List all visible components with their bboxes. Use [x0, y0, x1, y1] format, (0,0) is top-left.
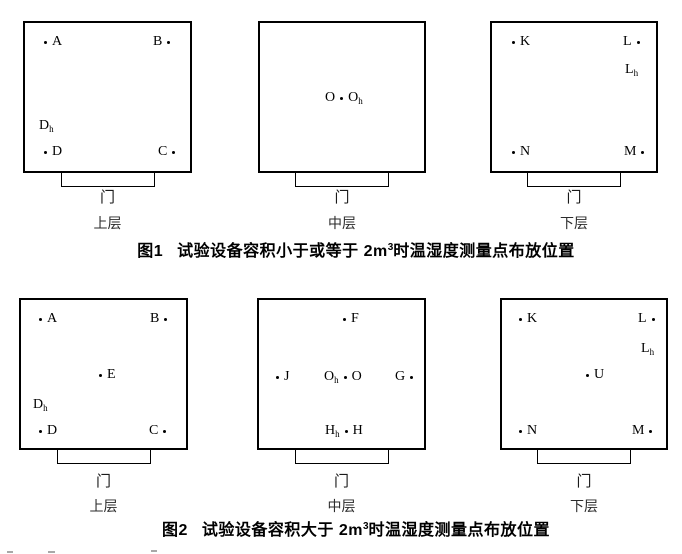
- point-marker-dot: [164, 318, 167, 321]
- points-layer: ABEDhDC: [19, 298, 188, 450]
- point-marker-dot: [519, 318, 522, 321]
- point-marker-dot: [519, 430, 522, 433]
- measure-point-Lh: Lh: [625, 63, 638, 77]
- door-shape: [295, 173, 389, 187]
- points-layer: KLLhUNM: [500, 298, 669, 450]
- layer-label: 下层: [500, 498, 668, 514]
- clipped-text-fragment: [151, 550, 157, 552]
- points-layer: FJOhOGHhH: [257, 298, 426, 450]
- chamber-box: KLLhUNM: [500, 298, 668, 450]
- measure-point-B: B: [153, 35, 170, 49]
- point-marker-dot: [652, 318, 655, 321]
- point-label: B: [153, 35, 162, 49]
- point-marker-dot: [344, 376, 347, 379]
- measure-point-F: F: [343, 312, 359, 326]
- measure-point-Oh-O: OhO: [324, 370, 362, 384]
- figure1-number: 图1: [137, 243, 163, 260]
- door-label: 门: [19, 473, 188, 491]
- chamber-box: ABDhDC: [23, 21, 192, 173]
- measure-point-J: J: [276, 370, 289, 384]
- point-label: E: [107, 368, 116, 382]
- measure-point-M: M: [632, 424, 652, 438]
- measure-point-K: K: [512, 35, 530, 49]
- point-label: M: [632, 424, 644, 438]
- measure-point-L: L: [638, 312, 655, 326]
- point-label: Lh: [641, 342, 654, 356]
- point-label: L: [638, 312, 647, 326]
- point-label: C: [149, 424, 158, 438]
- point-label: O: [352, 370, 362, 384]
- door-shape: [537, 450, 631, 464]
- point-label: N: [520, 145, 530, 159]
- point-marker-dot: [637, 41, 640, 44]
- cubic-meter-superscript: 3: [363, 521, 369, 532]
- panel-fig2-middle-layer: FJOhOGHhH 门 中层: [257, 298, 426, 518]
- point-label: D: [47, 424, 57, 438]
- measure-point-L: L: [623, 35, 640, 49]
- point-label: Oh: [324, 370, 339, 384]
- figure2-caption: 图2试验设备容积大于 2m3时温湿度测量点布放位置: [30, 521, 682, 543]
- measure-point-A: A: [44, 35, 62, 49]
- measure-point-O-Oh: OOh: [325, 91, 363, 105]
- door-shape: [527, 173, 621, 187]
- chamber-box: KLLhNM: [490, 21, 658, 173]
- point-label: Dh: [33, 398, 48, 412]
- figure1-caption: 图1试验设备容积小于或等于 2m3时温湿度测量点布放位置: [30, 242, 682, 264]
- point-marker-dot: [410, 376, 413, 379]
- point-marker-dot: [343, 318, 346, 321]
- clipped-text-fragment: [7, 551, 13, 553]
- point-label: A: [47, 312, 57, 326]
- door-shape: [295, 450, 389, 464]
- chamber-box: ABEDhDC: [19, 298, 188, 450]
- door-shape: [61, 173, 155, 187]
- point-label: H: [353, 424, 363, 438]
- point-marker-dot: [345, 430, 348, 433]
- point-marker-dot: [276, 376, 279, 379]
- measure-point-K: K: [519, 312, 537, 326]
- panel-fig1-middle-layer: OOh 门 中层: [258, 21, 426, 236]
- point-marker-dot: [586, 374, 589, 377]
- measure-point-D: D: [39, 424, 57, 438]
- measure-point-A: A: [39, 312, 57, 326]
- point-label: M: [624, 145, 636, 159]
- figure1-caption-tail: 时温湿度测量点布放位置: [393, 243, 575, 260]
- points-layer: OOh: [258, 21, 427, 173]
- figure2-number: 图2: [162, 522, 188, 539]
- figure1-caption-text: 试验设备容积小于或等于 2m: [177, 243, 388, 260]
- point-label: K: [527, 312, 537, 326]
- points-layer: ABDhDC: [23, 21, 192, 173]
- layer-label: 上层: [23, 215, 192, 231]
- point-marker-dot: [167, 41, 170, 44]
- point-label: B: [150, 312, 159, 326]
- point-marker-dot: [39, 318, 42, 321]
- point-label: O: [325, 91, 335, 105]
- point-marker-dot: [512, 41, 515, 44]
- measure-point-Dh: Dh: [33, 398, 48, 412]
- clipped-text-fragment: [48, 551, 55, 553]
- figure2-caption-tail: 时温湿度测量点布放位置: [369, 522, 551, 539]
- measure-point-N: N: [519, 424, 537, 438]
- layer-label: 下层: [490, 215, 658, 231]
- point-marker-dot: [163, 430, 166, 433]
- document-page: ABDhDC 门 上层 OOh 门 中层 KLLhNM 门 下层 图1试验设备容…: [0, 0, 682, 554]
- door-shape: [57, 450, 151, 464]
- point-marker-dot: [44, 41, 47, 44]
- point-label: Dh: [39, 119, 54, 133]
- measure-point-C: C: [158, 145, 175, 159]
- measure-point-Hh-H: HhH: [325, 424, 363, 438]
- measure-point-Dh: Dh: [39, 119, 54, 133]
- point-label: J: [284, 370, 289, 384]
- point-label: D: [52, 145, 62, 159]
- cubic-meter-superscript: 3: [388, 242, 394, 253]
- figure2-caption-text: 试验设备容积大于 2m: [202, 522, 363, 539]
- point-label: N: [527, 424, 537, 438]
- panel-fig1-upper-layer: ABDhDC 门 上层: [23, 21, 192, 236]
- measure-point-G: G: [395, 370, 413, 384]
- layer-label: 中层: [258, 215, 426, 231]
- chamber-box: FJOhOGHhH: [257, 298, 426, 450]
- point-marker-dot: [44, 151, 47, 154]
- point-label: A: [52, 35, 62, 49]
- measure-point-N: N: [512, 145, 530, 159]
- point-label: Oh: [348, 91, 363, 105]
- point-marker-dot: [641, 151, 644, 154]
- point-label: G: [395, 370, 405, 384]
- layer-label: 中层: [257, 498, 426, 514]
- point-marker-dot: [340, 97, 343, 100]
- measure-point-D: D: [44, 145, 62, 159]
- layer-label: 上层: [19, 498, 188, 514]
- door-label: 门: [490, 189, 658, 207]
- point-label: Lh: [625, 63, 638, 77]
- point-marker-dot: [172, 151, 175, 154]
- panel-fig2-upper-layer: ABEDhDC 门 上层: [19, 298, 188, 518]
- measure-point-M: M: [624, 145, 644, 159]
- point-marker-dot: [649, 430, 652, 433]
- door-label: 门: [23, 189, 192, 207]
- panel-fig2-lower-layer: KLLhUNM 门 下层: [500, 298, 668, 518]
- door-label: 门: [500, 473, 668, 491]
- measure-point-B: B: [150, 312, 167, 326]
- measure-point-Lh: Lh: [641, 342, 654, 356]
- measure-point-C: C: [149, 424, 166, 438]
- point-marker-dot: [512, 151, 515, 154]
- points-layer: KLLhNM: [490, 21, 659, 173]
- door-label: 门: [258, 189, 426, 207]
- point-label: F: [351, 312, 359, 326]
- point-label: C: [158, 145, 167, 159]
- chamber-box: OOh: [258, 21, 426, 173]
- point-label: L: [623, 35, 632, 49]
- point-label: K: [520, 35, 530, 49]
- door-label: 门: [257, 473, 426, 491]
- measure-point-U: U: [586, 368, 604, 382]
- measure-point-E: E: [99, 368, 116, 382]
- panel-fig1-lower-layer: KLLhNM 门 下层: [490, 21, 658, 236]
- point-marker-dot: [99, 374, 102, 377]
- point-marker-dot: [39, 430, 42, 433]
- point-label: Hh: [325, 424, 340, 438]
- point-label: U: [594, 368, 604, 382]
